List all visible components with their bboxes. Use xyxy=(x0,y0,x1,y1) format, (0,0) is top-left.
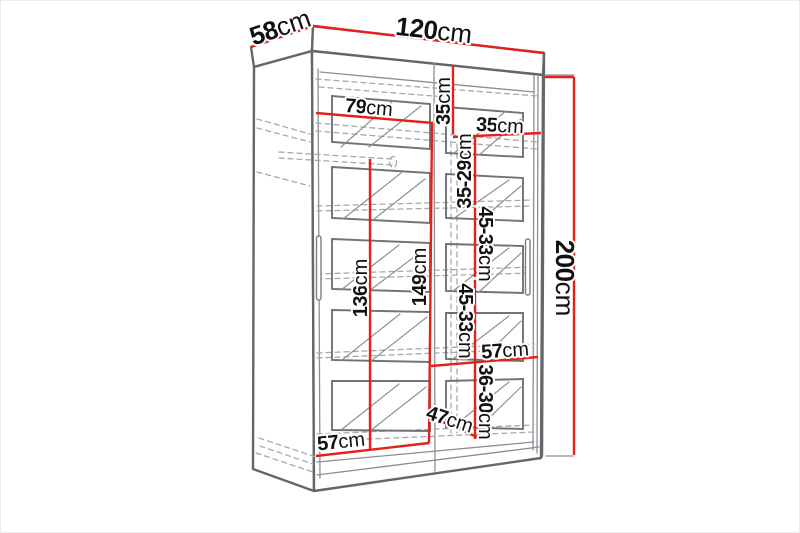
dim-label-35-29: 35-29cm xyxy=(454,133,476,208)
cabinet-outline xyxy=(251,26,544,491)
dim-label-45-33-lower: 45-33cm xyxy=(454,283,476,358)
dim-label-35h: 35cm xyxy=(475,114,524,138)
dim-label-57mid: 57cm xyxy=(480,338,529,363)
dim-label-45-33-upper: 45-33cm xyxy=(474,206,496,281)
wardrobe-drawing-canvas: 58cm 120cm 200cm 79cm 35cm 35cm 35-29cm … xyxy=(1,1,800,533)
dim-label-149: 149cm xyxy=(409,248,431,307)
wardrobe-dimension-diagram: 58cm 120cm 200cm 79cm 35cm 35cm 35-29cm … xyxy=(0,0,800,533)
dim-label-79: 79cm xyxy=(344,95,394,121)
dim-label-height: 200cm xyxy=(550,240,580,317)
dim-label-136: 136cm xyxy=(350,259,372,318)
left-door-handle xyxy=(317,236,322,300)
dim-label-36-30: 36-30cm xyxy=(474,364,496,439)
right-door-handle xyxy=(526,239,531,295)
dim-label-35v: 35cm xyxy=(433,77,455,125)
